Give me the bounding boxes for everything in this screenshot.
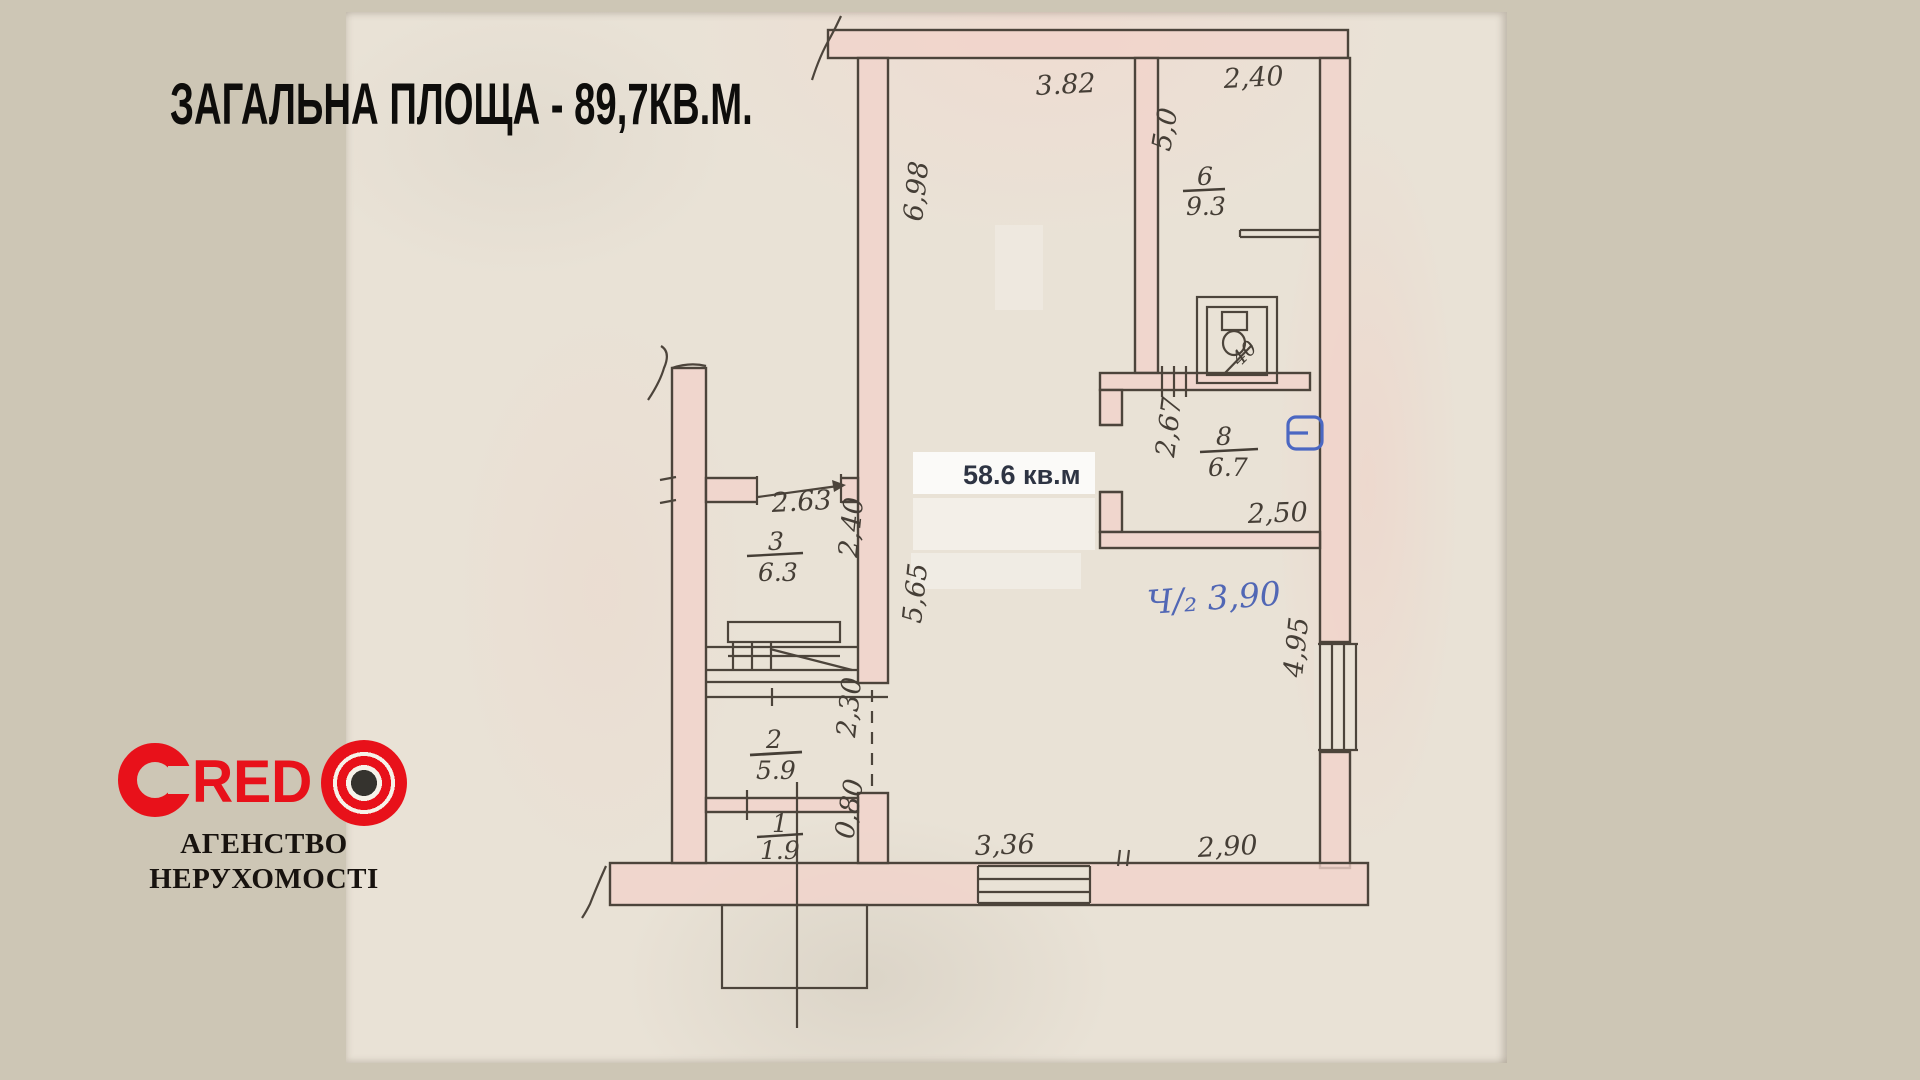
credo-logo: RED АГЕНСТВО НЕРУХОМОСТІ [118,740,418,896]
window-right [1314,644,1358,750]
dim-room8-left: 2,67 [1150,395,1188,460]
svg-text:9.3: 9.3 [1186,192,1226,221]
wall-room8-left-a [1100,390,1122,425]
wall-right-lower [1320,752,1350,868]
svg-text:3: 3 [768,527,784,556]
dim-main-left-upper: 6,98 [898,160,935,223]
logo-subtitle-line2: НЕРУХОМОСТІ [118,863,410,896]
toilet-icon [1197,297,1277,383]
wall-room8-bottom [1100,532,1320,548]
window-bottom [978,866,1090,903]
room-8-label: 8 6.7 [1200,422,1258,482]
room-3-label: 3 6.3 [747,527,803,587]
dim-room3-top: 2.63 [770,485,833,519]
printed-area-label: 58.6 кв.м [963,460,1081,490]
logo-letter-c [118,743,192,817]
dim-right-wall: 4,95 [1278,616,1315,680]
svg-text:6.3: 6.3 [758,558,798,587]
wall-left-outer [672,368,706,863]
wall-partition-upper [858,58,888,683]
dim-top-main: 3.82 [1035,68,1097,102]
wall-room6-left [1135,58,1158,373]
page-background: { "title": "ЗАГАЛЬНА ПЛОЩА - 89,7КВ.М.",… [0,0,1920,1080]
logo-red-text: RED [192,752,312,812]
blue-dimension-note: Ч/₂ 3,90 [1146,574,1282,622]
dim-room8-bottom: 2,50 [1246,497,1308,530]
bullseye-icon [321,740,407,826]
dim-room2-right: 2,30 [831,676,868,740]
wall-right-upper [1320,58,1350,642]
wall-top [828,30,1348,58]
svg-text:2: 2 [765,725,782,754]
logo-letter-c-gap [168,766,194,794]
dim-hall-left: 5,65 [897,562,934,625]
floor-plan-drawing: 3.82 2,40 5,0 6,98 2.63 2,40 5,65 2,67 2… [0,0,1920,1080]
svg-text:1: 1 [772,809,788,838]
dim-bottom-right: 2,90 [1196,830,1259,864]
svg-text:5.9: 5.9 [756,756,796,785]
room-2-label: 2 5.9 [750,725,802,785]
entry-porch [722,905,867,988]
svg-text:1.9: 1.9 [760,836,800,865]
break-mark-bottom [582,866,606,918]
blue-marker-icon [1288,417,1322,449]
svg-text:6: 6 [1197,162,1213,191]
dim-bottom-left: 3,36 [974,829,1035,862]
room-6-label: 6 9.3 [1183,162,1226,221]
svg-text:8: 8 [1216,422,1232,451]
wall-room6-bottom [1100,373,1310,390]
redaction-patches [911,225,1095,589]
wall-room8-left-b [1100,492,1122,532]
logo-subtitle-line1: АГЕНСТВО [118,828,410,861]
logo-brand-row: RED [118,740,418,826]
svg-text:6.7: 6.7 [1208,453,1248,482]
dim-room6-left: 5,0 [1146,106,1184,154]
break-mark-left [648,346,667,400]
dim-room3-right: 2,40 [833,496,870,560]
dim-top-right: 2,40 [1222,61,1285,95]
